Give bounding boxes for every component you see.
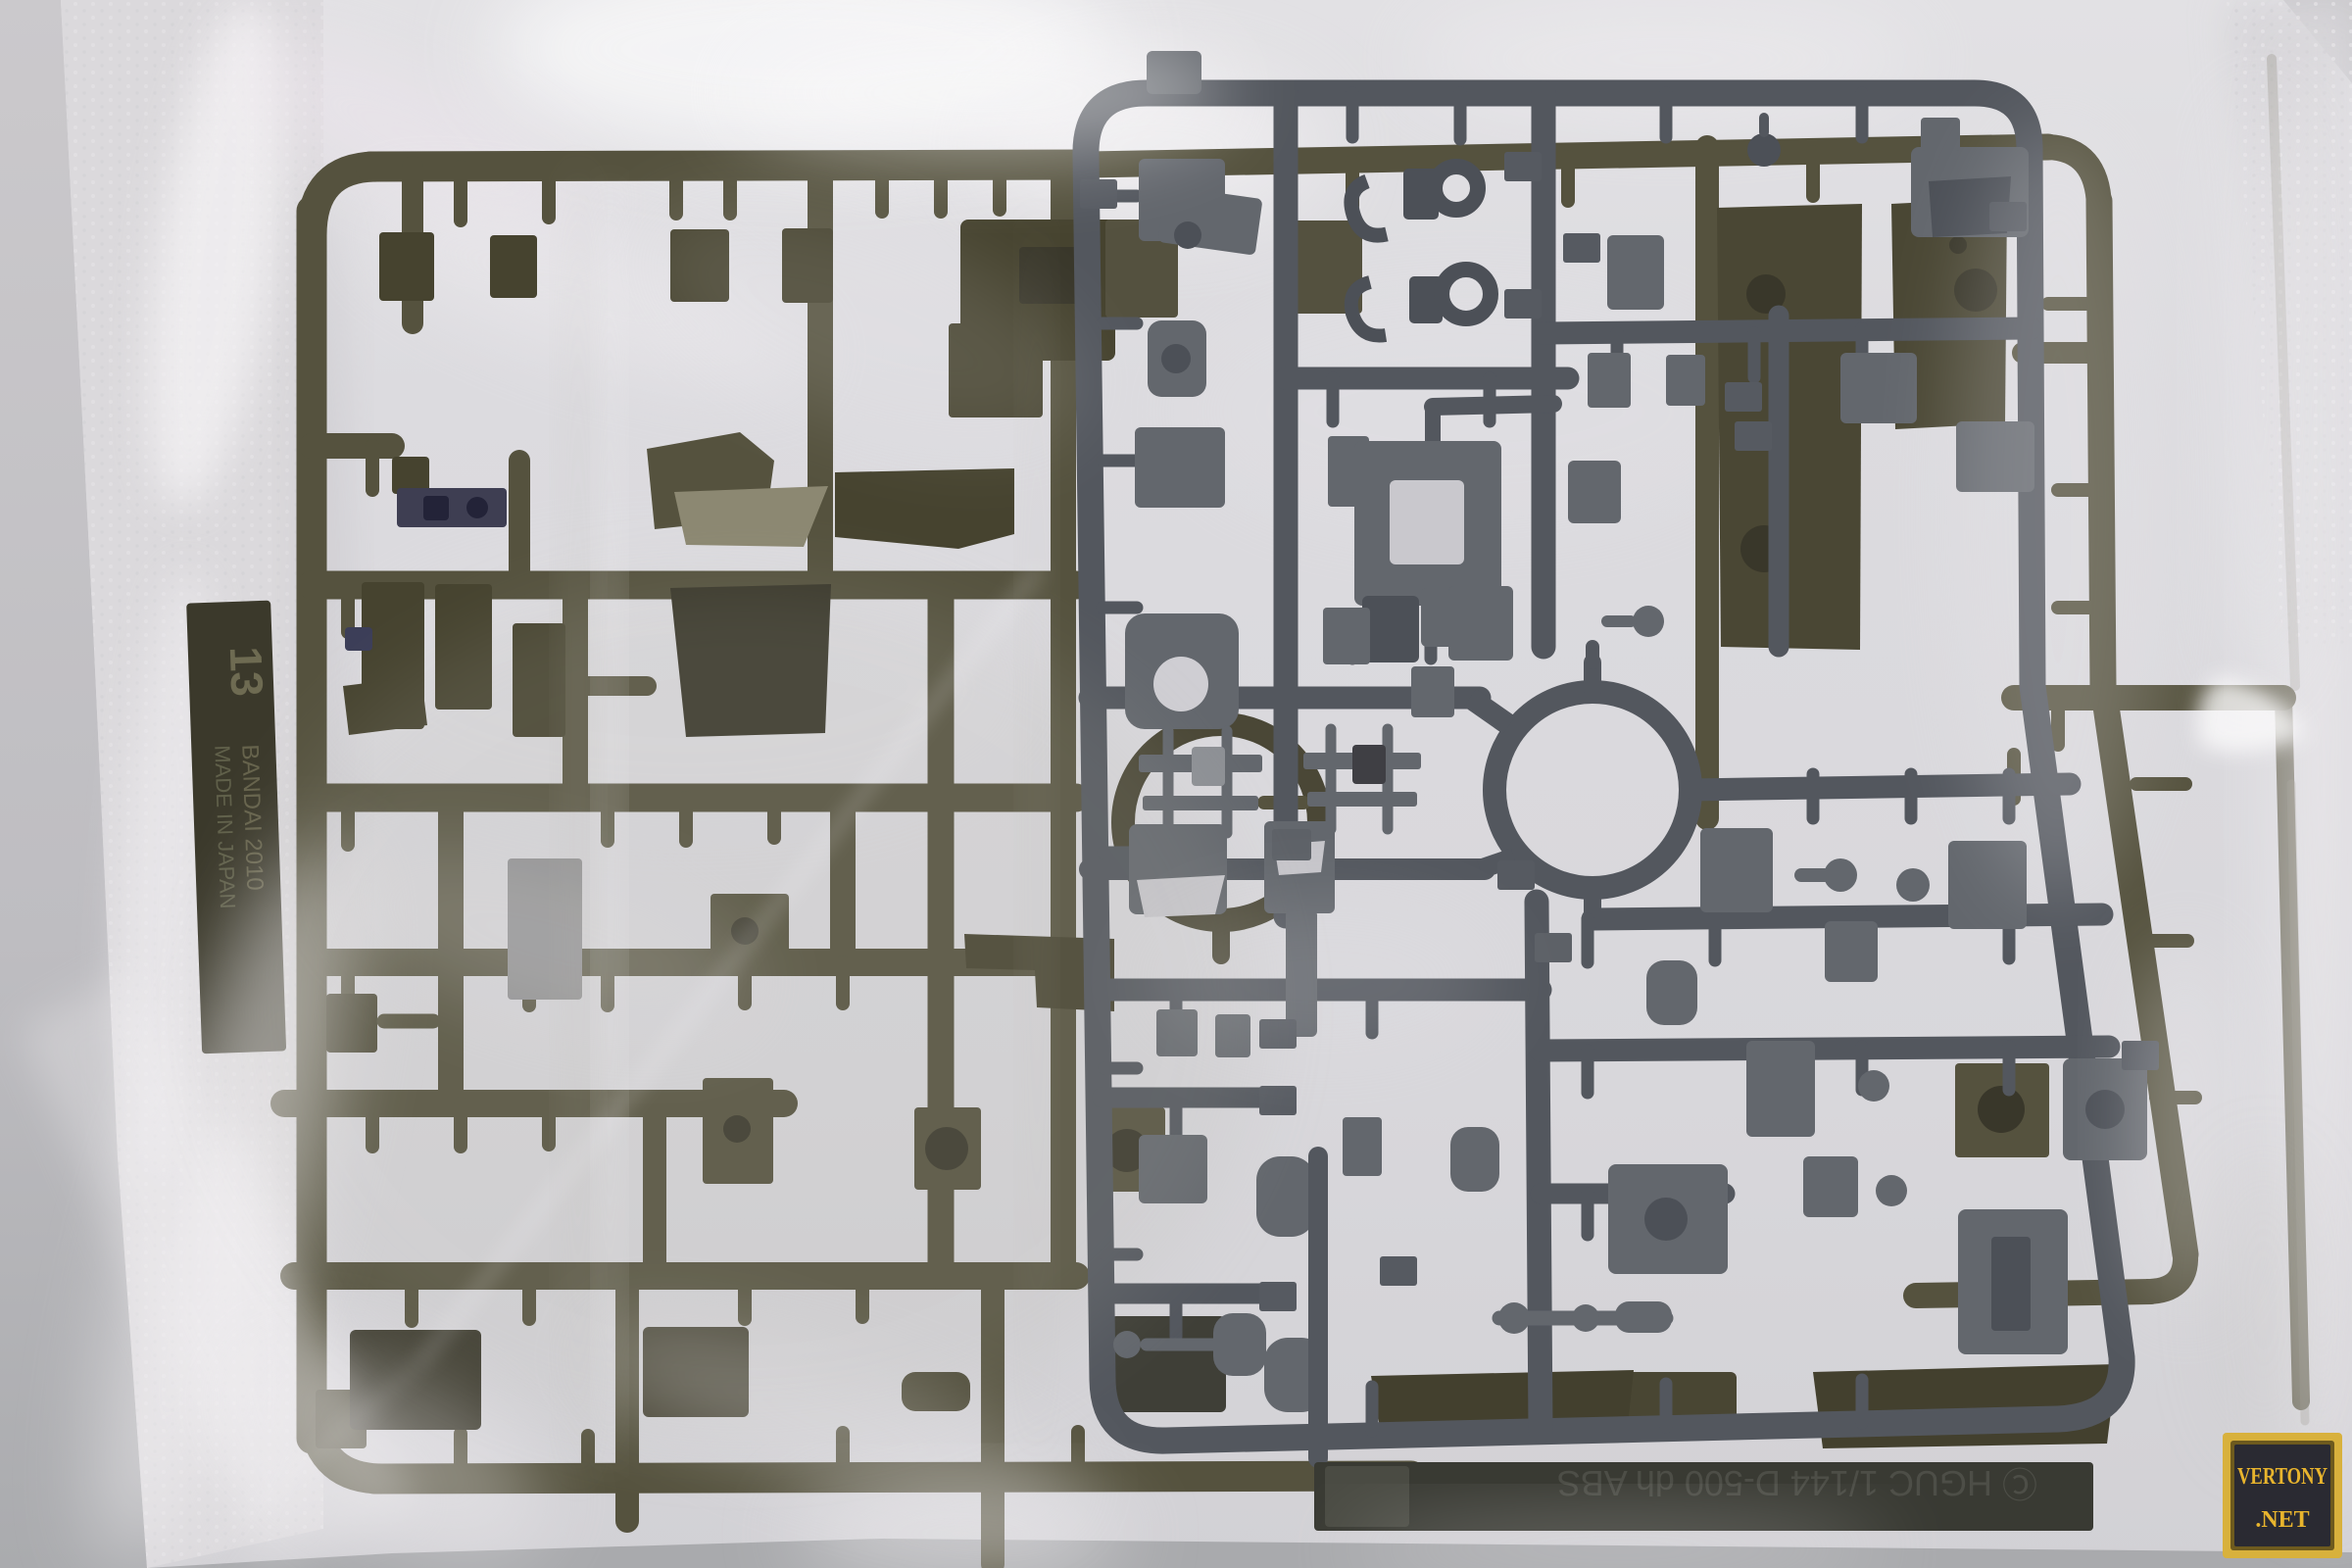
svg-text:VERTONY: VERTONY bbox=[2237, 1464, 2327, 1490]
svg-text:13: 13 bbox=[220, 646, 273, 698]
svg-text:.NET: .NET bbox=[2255, 1507, 2309, 1533]
svg-text:Ⓒ HGUC 1/144 D-500 dh ABS: Ⓒ HGUC 1/144 D-500 dh ABS bbox=[1557, 1463, 2037, 1503]
